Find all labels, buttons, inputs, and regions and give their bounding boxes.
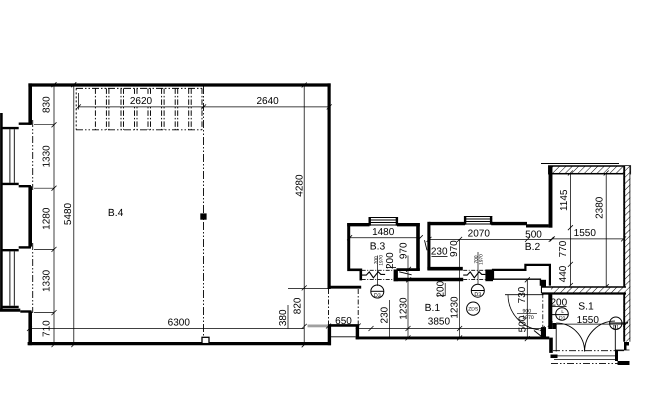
svg-text:1550: 1550 bbox=[577, 315, 600, 326]
svg-text:1970: 1970 bbox=[522, 315, 534, 321]
svg-text:970: 970 bbox=[399, 242, 410, 259]
svg-text:200: 200 bbox=[385, 252, 396, 269]
svg-text:2380: 2380 bbox=[595, 196, 606, 219]
svg-text:1330: 1330 bbox=[42, 269, 53, 292]
svg-text:1330: 1330 bbox=[42, 145, 53, 168]
svg-text:2070: 2070 bbox=[468, 229, 491, 240]
svg-text:B.3: B.3 bbox=[370, 241, 386, 252]
svg-text:D3: D3 bbox=[374, 293, 381, 299]
svg-text:440: 440 bbox=[558, 265, 569, 282]
svg-text:500: 500 bbox=[525, 229, 542, 240]
svg-text:730: 730 bbox=[517, 286, 528, 303]
svg-text:230: 230 bbox=[380, 306, 391, 323]
svg-text:3850: 3850 bbox=[428, 317, 451, 328]
svg-text:5480: 5480 bbox=[63, 202, 74, 225]
svg-text:D3: D3 bbox=[474, 292, 481, 298]
svg-text:970: 970 bbox=[449, 240, 460, 257]
svg-text:B.1: B.1 bbox=[425, 303, 441, 314]
svg-text:6300: 6300 bbox=[168, 317, 191, 328]
svg-text:830: 830 bbox=[42, 96, 53, 113]
svg-text:B.2: B.2 bbox=[525, 242, 541, 253]
svg-text:1550: 1550 bbox=[574, 228, 597, 239]
svg-text:230: 230 bbox=[431, 247, 448, 258]
svg-text:1230: 1230 bbox=[399, 297, 410, 320]
svg-text:1480: 1480 bbox=[372, 227, 395, 238]
svg-text:2640: 2640 bbox=[256, 96, 279, 107]
svg-text:1145: 1145 bbox=[559, 189, 570, 211]
svg-text:200: 200 bbox=[550, 298, 567, 309]
svg-text:ZDS: ZDS bbox=[468, 307, 479, 313]
svg-text:200: 200 bbox=[436, 280, 447, 297]
svg-text:380: 380 bbox=[278, 309, 289, 326]
svg-text:B.4: B.4 bbox=[108, 208, 124, 219]
svg-text:1230: 1230 bbox=[450, 296, 461, 319]
svg-text:820: 820 bbox=[293, 297, 304, 314]
svg-text:1970: 1970 bbox=[479, 254, 485, 265]
svg-text:1280: 1280 bbox=[42, 207, 53, 230]
svg-text:4280: 4280 bbox=[295, 174, 306, 197]
svg-text:S.1: S.1 bbox=[578, 301, 594, 312]
svg-text:770: 770 bbox=[558, 240, 569, 257]
svg-text:2620: 2620 bbox=[130, 96, 153, 107]
svg-text:D1: D1 bbox=[559, 316, 566, 322]
svg-text:650: 650 bbox=[335, 316, 352, 327]
svg-text:D1: D1 bbox=[613, 324, 620, 330]
svg-text:L: L bbox=[561, 309, 564, 314]
svg-text:1970: 1970 bbox=[379, 255, 385, 266]
